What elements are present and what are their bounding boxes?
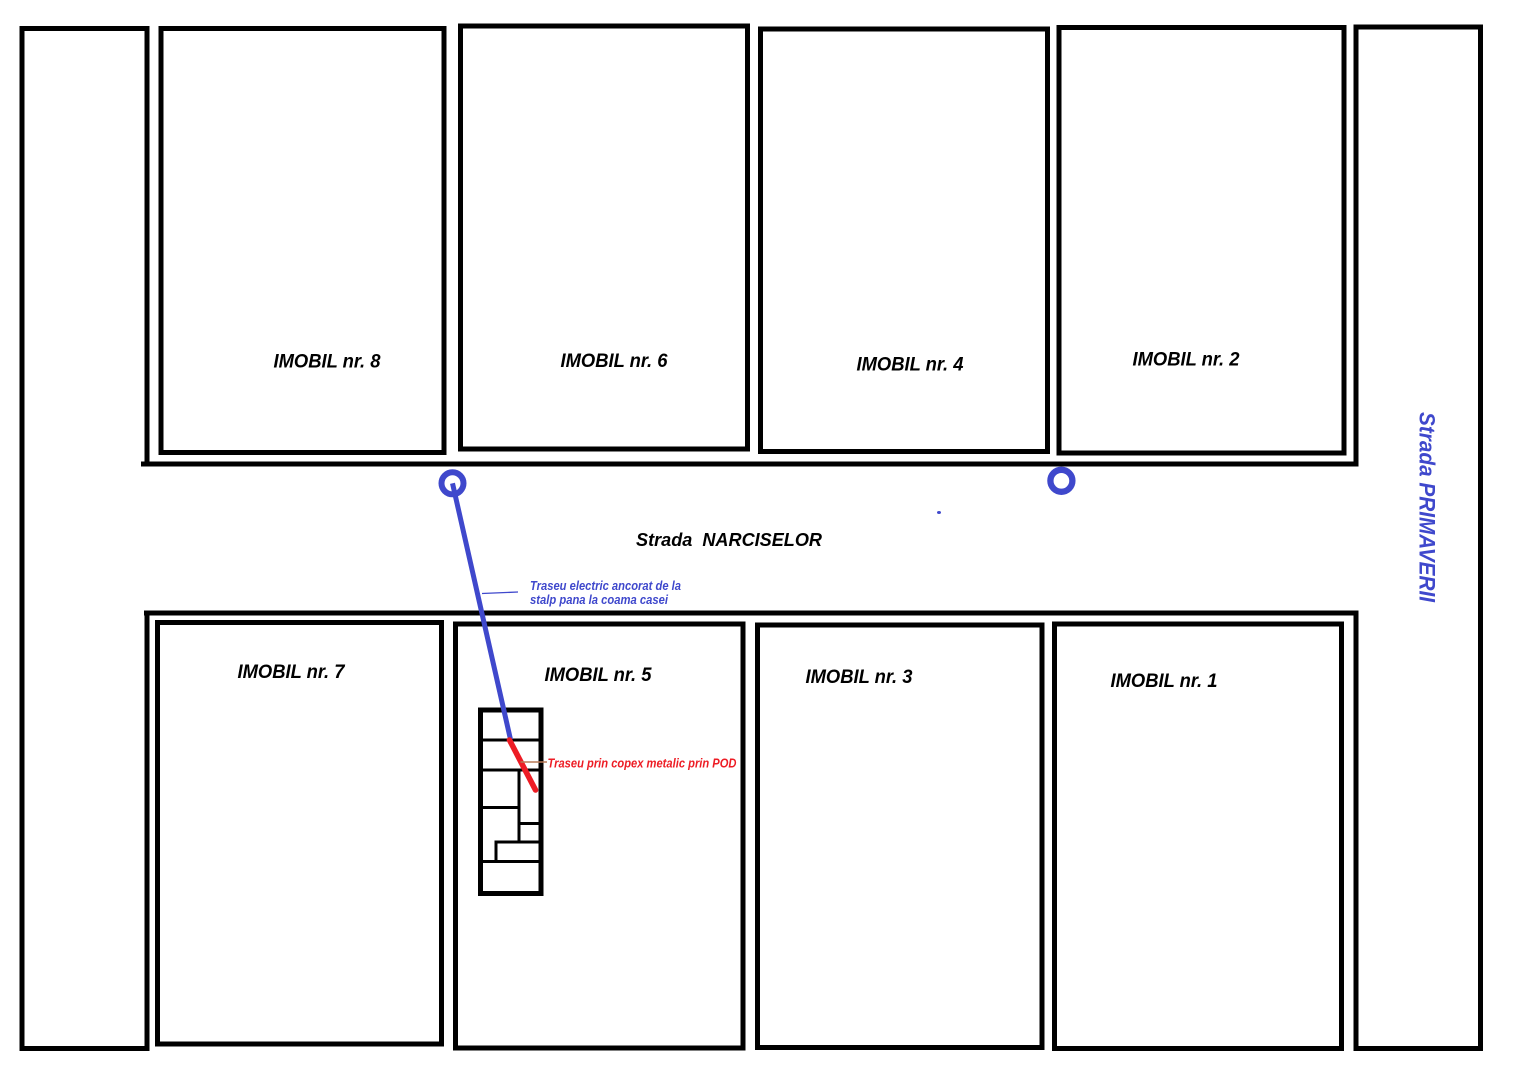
svg-text:IMOBIL nr. 5: IMOBIL nr. 5 — [545, 664, 653, 686]
svg-text:Strada NARCISELOR: Strada NARCISELOR — [636, 529, 823, 550]
svg-text:IMOBIL nr. 3: IMOBIL nr. 3 — [806, 666, 913, 688]
svg-text:IMOBIL nr. 4: IMOBIL nr. 4 — [857, 354, 964, 376]
svg-text:Traseu electric ancorat de la: Traseu electric ancorat de la — [530, 578, 681, 593]
svg-text:IMOBIL nr. 8: IMOBIL nr. 8 — [274, 351, 381, 373]
svg-text:IMOBIL nr. 7: IMOBIL nr. 7 — [238, 661, 346, 683]
svg-text:IMOBIL nr. 6: IMOBIL nr. 6 — [561, 350, 668, 372]
svg-text:IMOBIL nr. 2: IMOBIL nr. 2 — [1133, 349, 1240, 371]
svg-text:IMOBIL nr. 1: IMOBIL nr. 1 — [1111, 670, 1218, 692]
svg-text:Traseu prin copex metalic prin: Traseu prin copex metalic prin POD — [548, 756, 738, 771]
svg-text:Strada PRIMAVERII: Strada PRIMAVERII — [1415, 412, 1440, 603]
svg-text:stalp pana la coama casei: stalp pana la coama casei — [530, 592, 668, 607]
